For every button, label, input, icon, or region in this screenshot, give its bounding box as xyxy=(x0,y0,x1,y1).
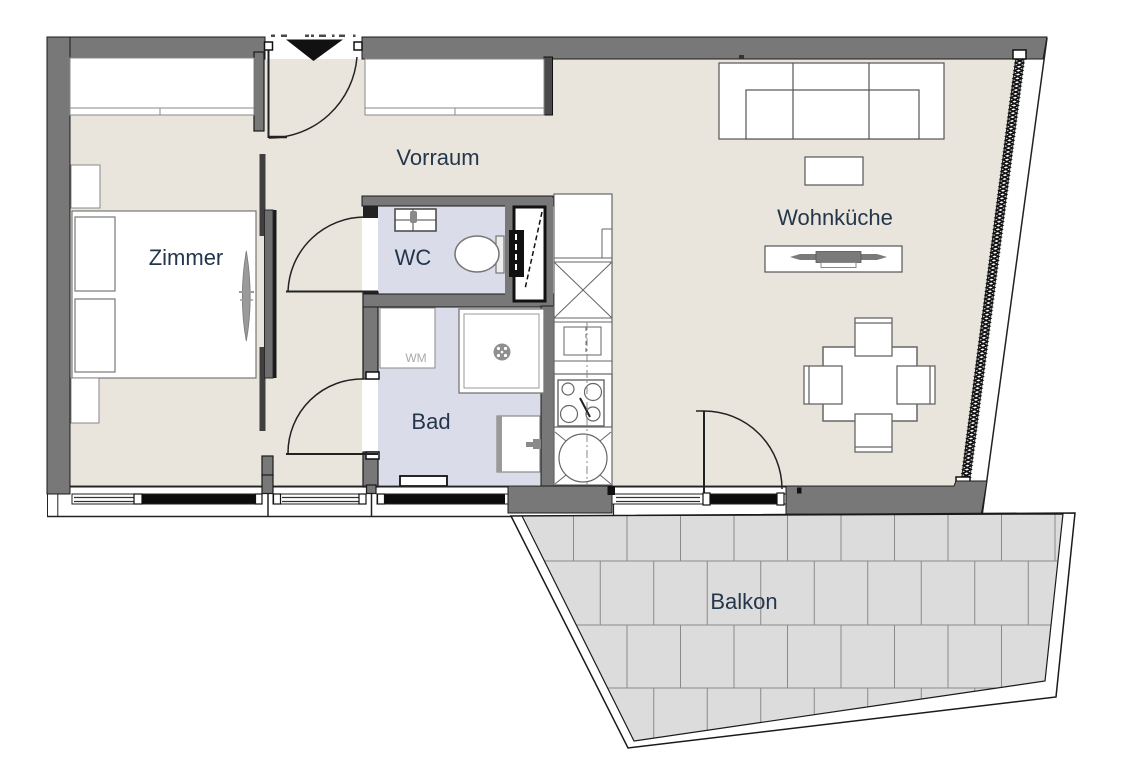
svg-text:Balkon: Balkon xyxy=(710,589,777,614)
svg-text:Vorraum: Vorraum xyxy=(396,145,479,170)
svg-text:WM: WM xyxy=(405,351,426,365)
svg-text:Zimmer: Zimmer xyxy=(149,245,224,270)
svg-text:WC: WC xyxy=(395,245,432,270)
svg-text:Wohnküche: Wohnküche xyxy=(777,205,893,230)
svg-text:Bad: Bad xyxy=(411,409,450,434)
